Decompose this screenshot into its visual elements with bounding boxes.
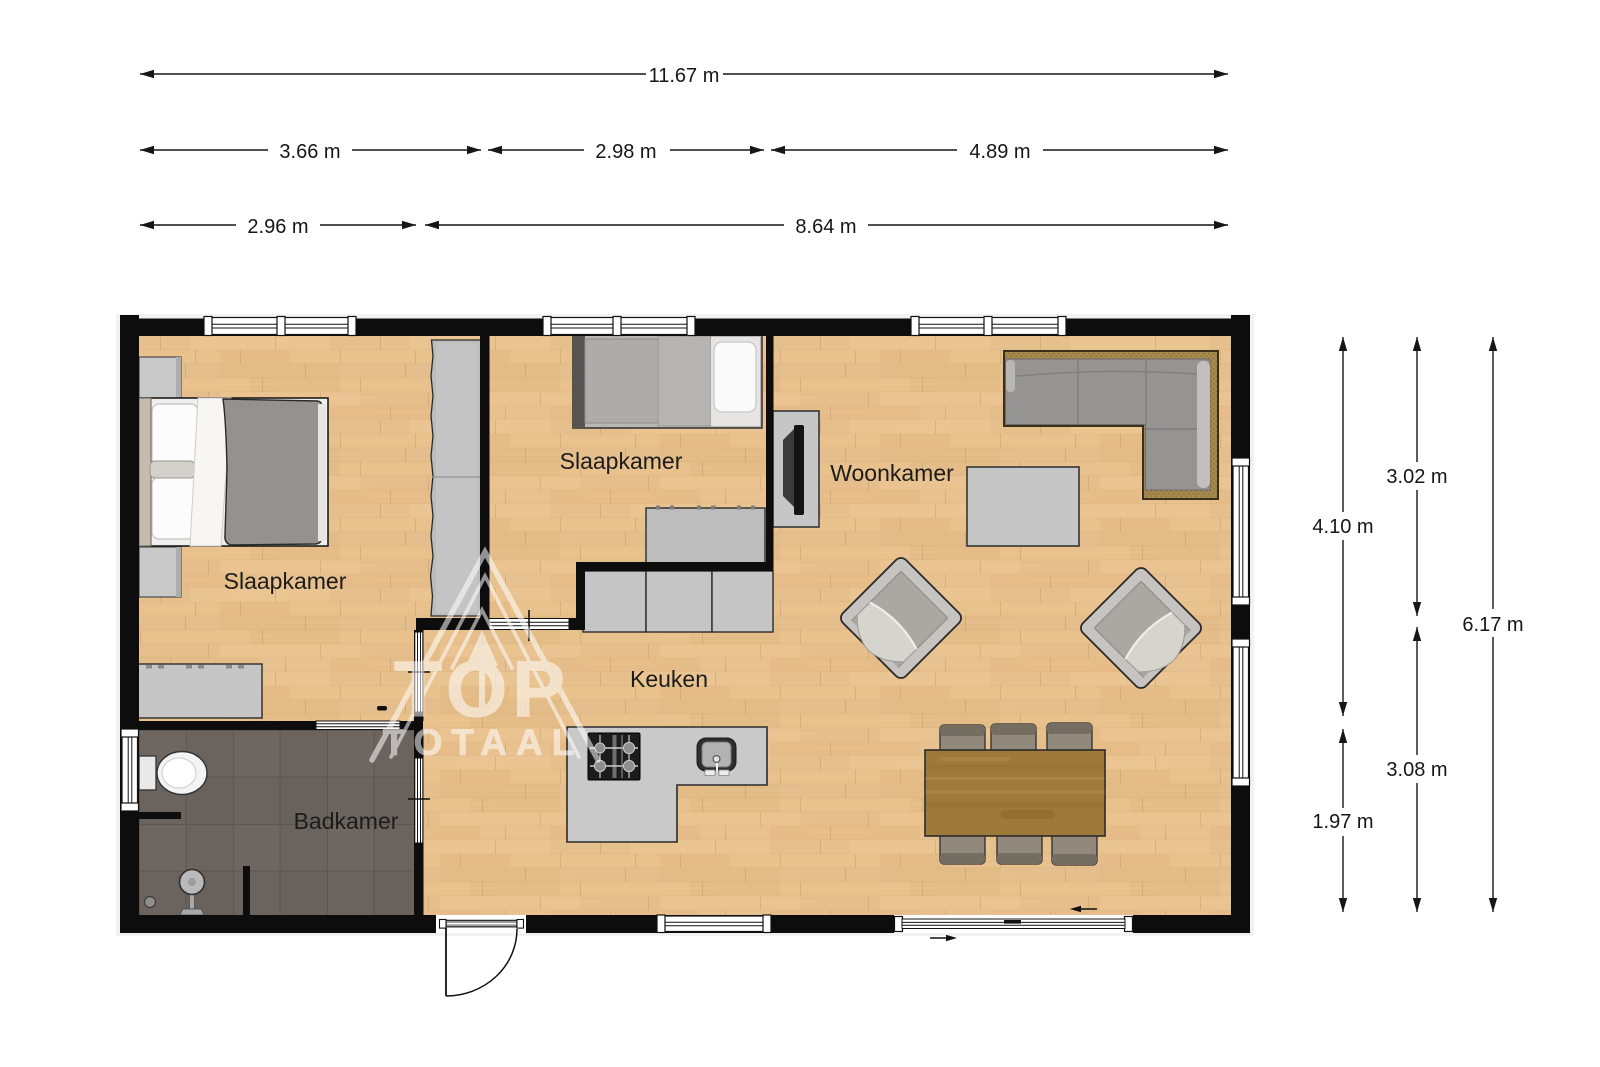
svg-text:2.96 m: 2.96 m (247, 216, 308, 238)
svg-text:2.98 m: 2.98 m (595, 141, 656, 163)
svg-text:Slaapkamer: Slaapkamer (224, 568, 347, 594)
svg-text:Slaapkamer: Slaapkamer (560, 448, 683, 474)
svg-text:3.08 m: 3.08 m (1386, 759, 1447, 781)
svg-text:TOTAAL: TOTAAL (383, 722, 584, 763)
svg-text:1.97 m: 1.97 m (1312, 811, 1373, 833)
svg-text:11.67 m: 11.67 m (649, 65, 720, 87)
svg-text:Badkamer: Badkamer (294, 808, 399, 834)
svg-text:3.66 m: 3.66 m (279, 141, 340, 163)
svg-text:8.64 m: 8.64 m (795, 216, 856, 238)
svg-text:3.02 m: 3.02 m (1386, 466, 1447, 488)
svg-text:4.10 m: 4.10 m (1312, 516, 1373, 538)
svg-text:4.89 m: 4.89 m (969, 141, 1030, 163)
svg-text:Woonkamer: Woonkamer (830, 460, 954, 486)
svg-text:6.17 m: 6.17 m (1462, 614, 1523, 636)
svg-text:Keuken: Keuken (630, 666, 708, 692)
